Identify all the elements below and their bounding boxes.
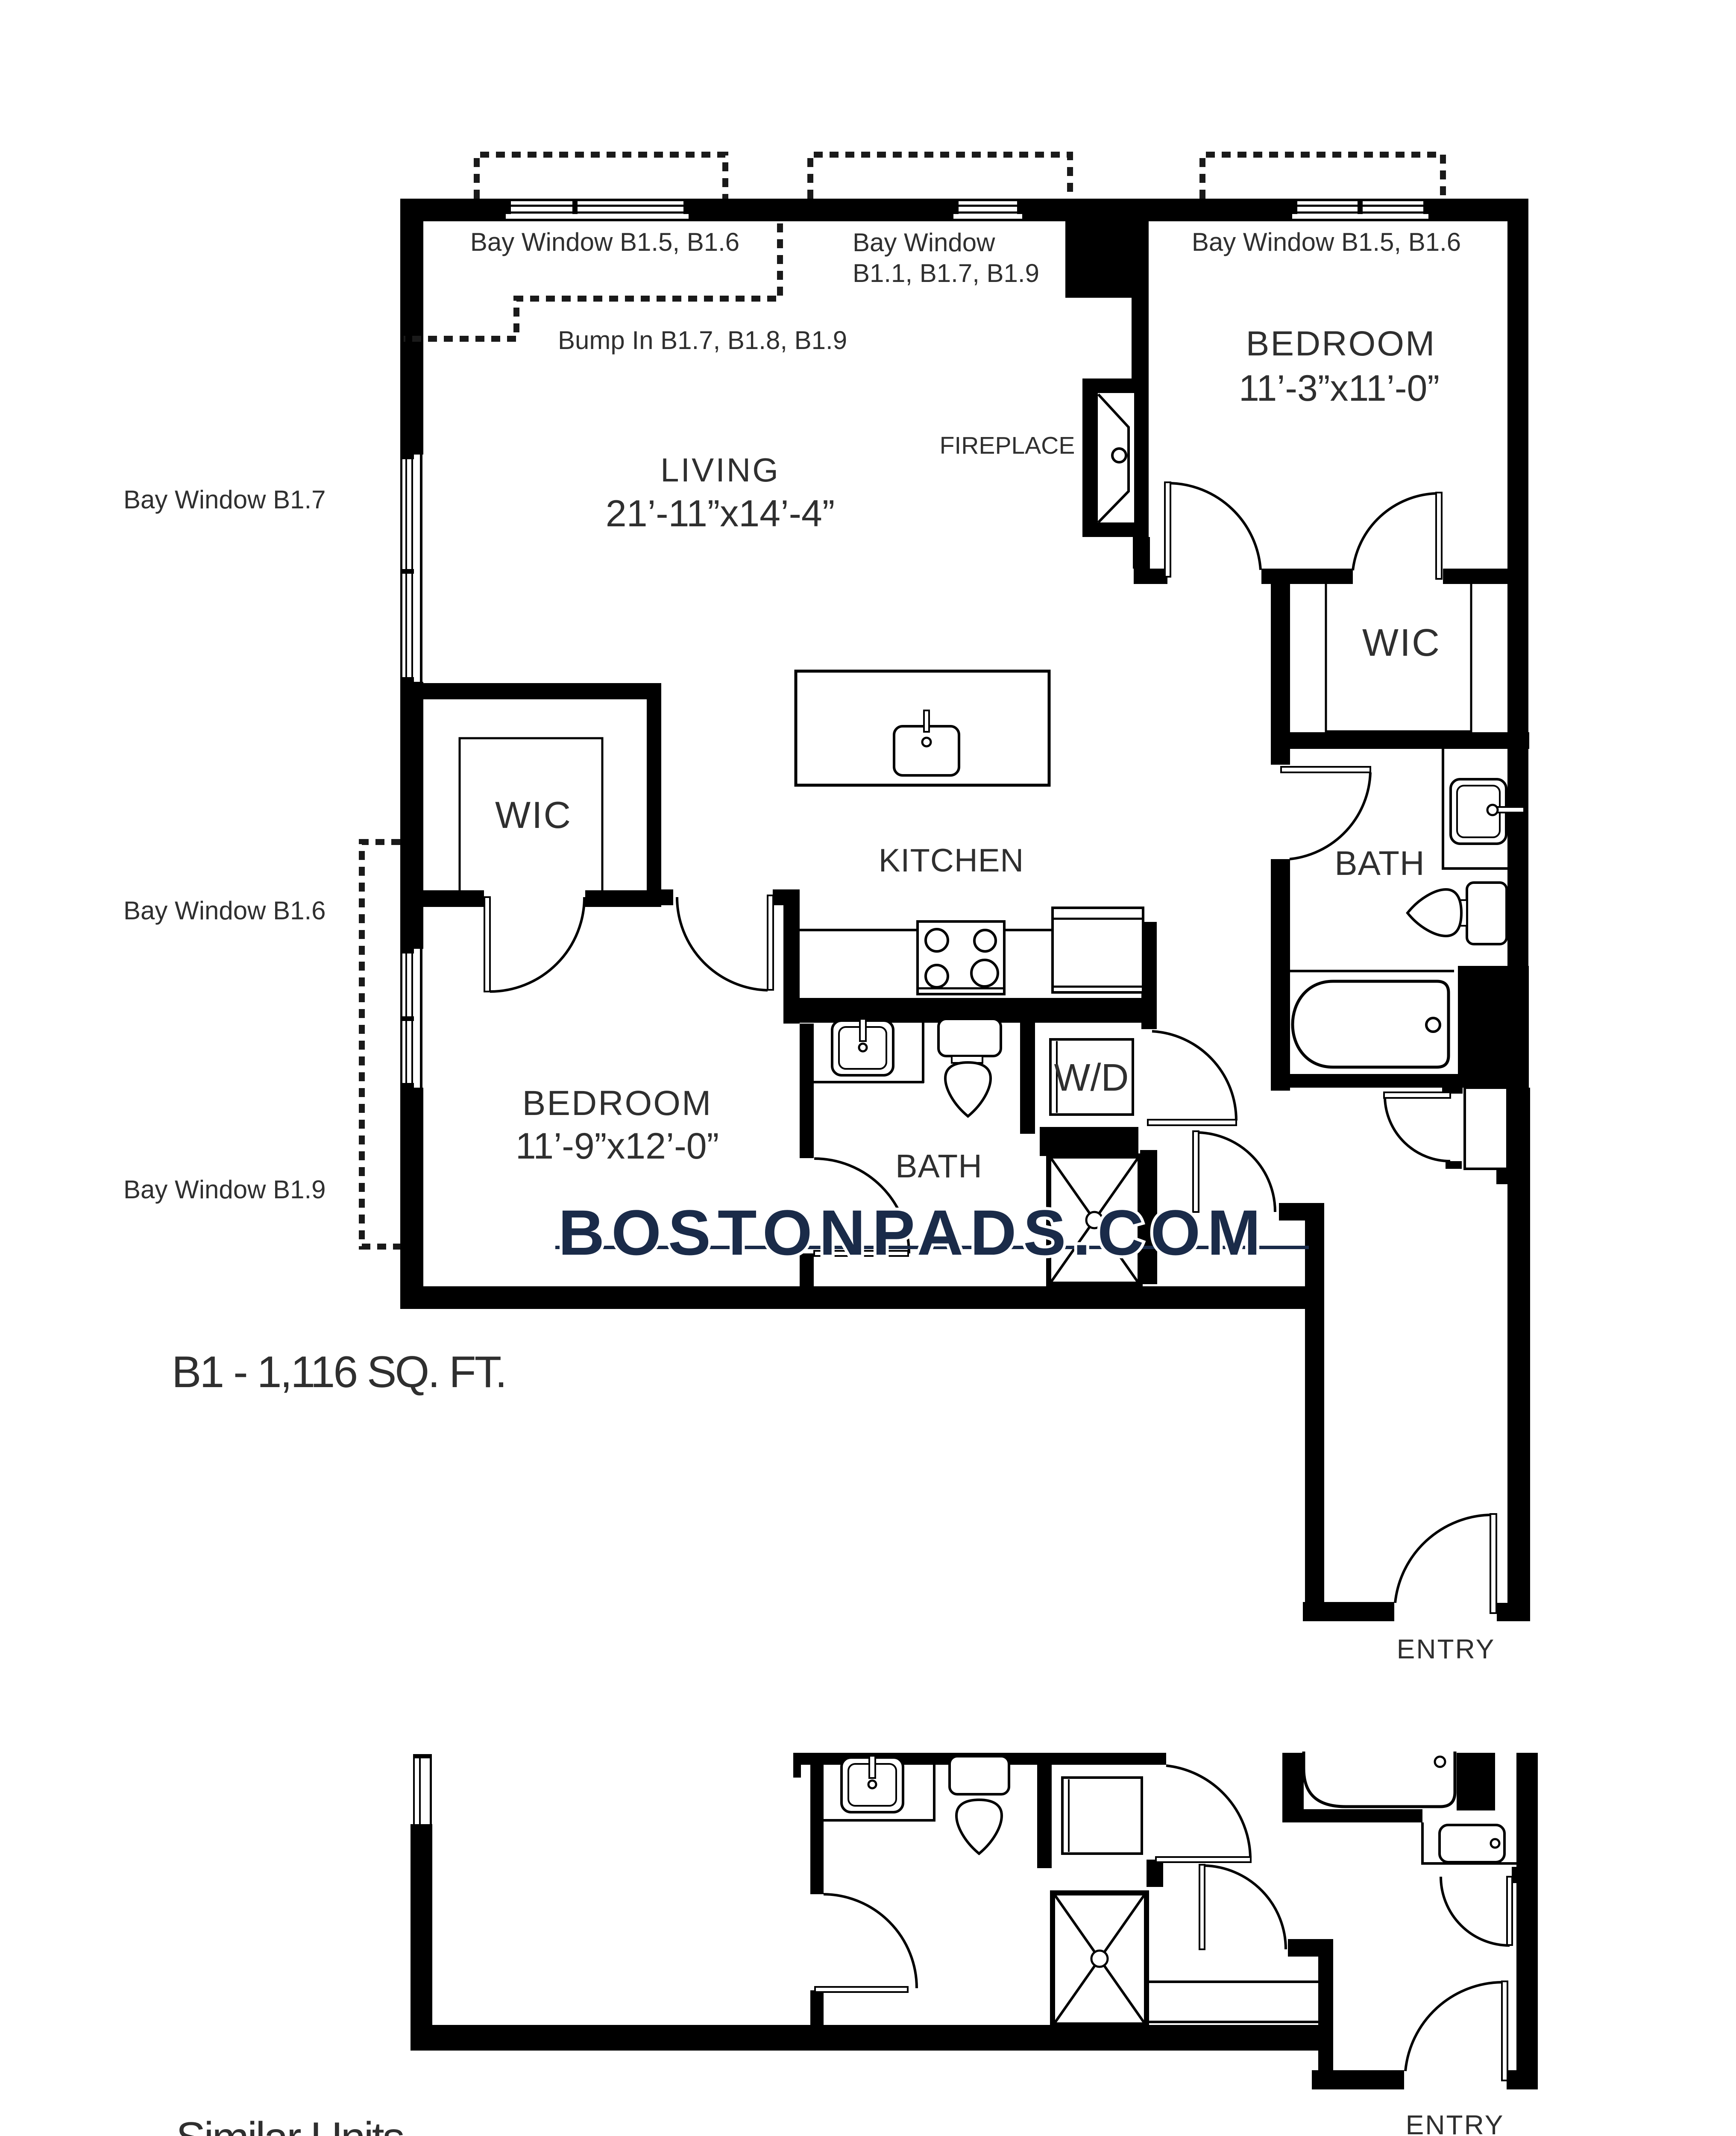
svg-text:21’-11”x14’-4”: 21’-11”x14’-4” (606, 492, 835, 534)
svg-text:Bay Window B1.9: Bay Window B1.9 (123, 1175, 326, 1204)
svg-text:FIREPLACE: FIREPLACE (940, 432, 1075, 459)
svg-text:ENTRY: ENTRY (1406, 2110, 1504, 2136)
svg-text:B1.1, B1.7, B1.9: B1.1, B1.7, B1.9 (853, 259, 1039, 288)
svg-text:B1 - 1,116 SQ. FT.: B1 - 1,116 SQ. FT. (172, 1347, 506, 1397)
svg-text:Similar Units: Similar Units (176, 2113, 404, 2136)
svg-text:Bump In B1.7, B1.8, B1.9: Bump In B1.7, B1.8, B1.9 (558, 326, 847, 355)
svg-text:BOSTONPADS.COM: BOSTONPADS.COM (558, 1197, 1267, 1268)
svg-text:ENTRY: ENTRY (1397, 1634, 1496, 1664)
svg-text:11’-9”x12’-0”: 11’-9”x12’-0” (516, 1126, 719, 1167)
svg-text:Bay Window: Bay Window (853, 228, 995, 257)
svg-text:Bay Window B1.6: Bay Window B1.6 (123, 896, 326, 925)
svg-text:BEDROOM: BEDROOM (1246, 324, 1436, 363)
svg-text:BATH: BATH (1334, 844, 1425, 882)
svg-text:LIVING: LIVING (660, 451, 780, 489)
svg-text:Bay Window B1.7: Bay Window B1.7 (123, 485, 326, 514)
svg-text:Bay Window B1.5, B1.6: Bay Window B1.5, B1.6 (1192, 228, 1461, 256)
svg-text:WIC: WIC (1362, 622, 1441, 664)
svg-text:BATH: BATH (895, 1148, 982, 1185)
svg-text:W/D: W/D (1054, 1056, 1129, 1099)
svg-text:WIC: WIC (495, 794, 572, 836)
svg-text:BEDROOM: BEDROOM (522, 1084, 713, 1123)
svg-text:11’-3”x11’-0”: 11’-3”x11’-0” (1239, 368, 1440, 409)
svg-text:KITCHEN: KITCHEN (879, 842, 1024, 879)
svg-text:Bay Window B1.5, B1.6: Bay Window B1.5, B1.6 (470, 228, 739, 256)
